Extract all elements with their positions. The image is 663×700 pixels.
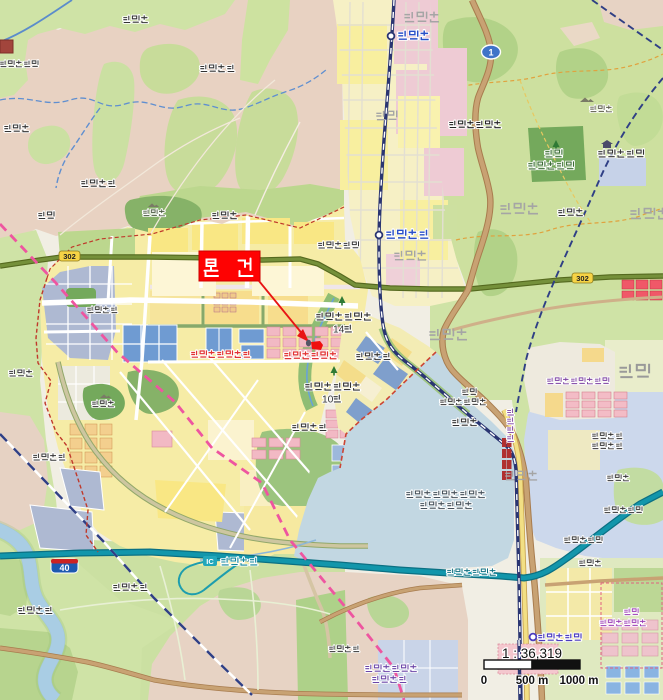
svg-text:0: 0 <box>481 675 487 687</box>
svg-text:40: 40 <box>59 563 69 573</box>
svg-text:0: 0 <box>328 394 334 405</box>
svg-text:500 m: 500 m <box>516 675 549 687</box>
svg-text:1 : 36,319: 1 : 36,319 <box>502 646 562 661</box>
svg-text:IC: IC <box>206 557 214 566</box>
svg-text:302: 302 <box>63 252 76 261</box>
svg-text:1000 m: 1000 m <box>559 675 598 687</box>
svg-text:1: 1 <box>488 48 493 58</box>
svg-text:4: 4 <box>339 324 345 335</box>
svg-text:302: 302 <box>576 274 589 283</box>
